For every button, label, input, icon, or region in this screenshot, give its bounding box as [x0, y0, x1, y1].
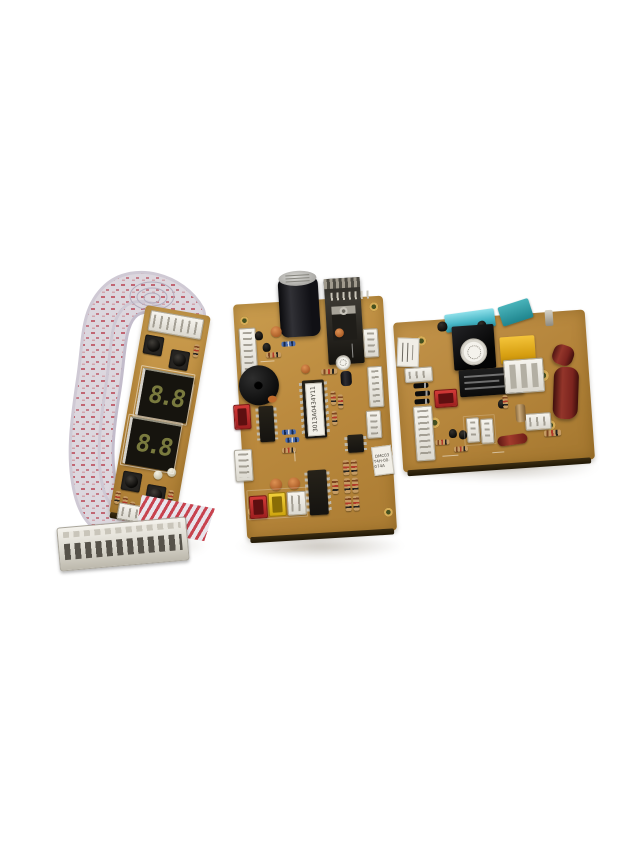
- main-control-pcb: 3013A0434Y11 DMC03: [233, 296, 397, 540]
- capacitor-tan: [515, 404, 526, 423]
- small-capacitor: [437, 321, 448, 332]
- resistor: [332, 411, 338, 425]
- silkscreen-mark: [492, 451, 504, 453]
- resistor: [330, 391, 336, 405]
- resistor: [193, 344, 200, 358]
- fuse-sleeve-large: [552, 367, 579, 420]
- silkscreen-mark: [260, 360, 274, 362]
- round-sticker: [335, 355, 351, 371]
- mounting-hole: [240, 316, 250, 326]
- resistor-blue: [285, 437, 299, 443]
- silkscreen-frame: [246, 487, 308, 521]
- transformer: [451, 324, 496, 371]
- resistor: [338, 394, 344, 408]
- sticker-label: [397, 338, 420, 368]
- connector-slot: [520, 364, 528, 388]
- resistor-blue: [281, 341, 295, 347]
- header-connector: [363, 328, 380, 358]
- resistor: [345, 496, 352, 511]
- piezo-buzzer: [238, 364, 280, 406]
- resistor: [344, 478, 351, 493]
- disc-capacitor: [270, 326, 282, 338]
- eeprom-ic: [347, 434, 364, 453]
- resistor: [435, 439, 449, 445]
- tactile-button: [168, 349, 190, 371]
- resistor: [352, 478, 359, 493]
- ic-label: 3013A0434Y11: [305, 383, 325, 437]
- dip-ic: [258, 406, 275, 443]
- silkscreen-mark: [294, 451, 296, 461]
- mounting-hole: [384, 507, 394, 517]
- resistor: [343, 460, 350, 475]
- diode: [415, 390, 430, 396]
- header-connector: [367, 366, 384, 408]
- connector-slot: [509, 364, 517, 388]
- resistor: [454, 446, 468, 452]
- pin-header: [330, 290, 370, 300]
- resistor: [353, 495, 360, 510]
- resistor: [544, 429, 561, 436]
- power-pcb: [393, 309, 595, 472]
- header-connector: [525, 412, 552, 431]
- resistor: [332, 479, 339, 494]
- resistor: [502, 395, 508, 408]
- transistor: [262, 343, 271, 352]
- heatsink-fins: [324, 277, 361, 289]
- photo-canvas: 8.8 8.8: [0, 0, 640, 853]
- resistor: [266, 352, 281, 358]
- mounting-hole: [369, 302, 379, 312]
- sticker-text: T4H-00-074A: [373, 457, 392, 470]
- microcontroller-ic: 3013A0434Y11: [302, 379, 327, 438]
- resistor: [321, 369, 337, 375]
- header-connector: [366, 410, 383, 439]
- transistor: [449, 429, 458, 439]
- disc-capacitor: [301, 364, 311, 374]
- plug-pin-slots: [64, 534, 183, 560]
- sticker-label: DMC03 T4H-00-074A: [371, 445, 395, 476]
- fuse-sleeve-small: [550, 342, 577, 368]
- connector-slot: [531, 363, 539, 387]
- silkscreen-frame: [120, 414, 183, 475]
- electrolytic-capacitor: [277, 276, 321, 338]
- multi-pin-connector: [413, 405, 436, 461]
- red-connector: [434, 389, 458, 409]
- header-connector: [404, 366, 433, 383]
- silkscreen-mark: [442, 455, 458, 457]
- red-cylinder-capacitor: [497, 433, 528, 447]
- diode: [413, 383, 428, 389]
- capacitor-vent-top: [278, 270, 317, 287]
- silkscreen-frame: [463, 414, 497, 446]
- resistor: [351, 460, 358, 475]
- buzzer-hole: [254, 380, 264, 390]
- tactile-button: [142, 334, 164, 356]
- label-print: [402, 343, 404, 362]
- glue-dot: [268, 395, 277, 403]
- driver-ic: [307, 469, 329, 515]
- diode: [414, 399, 429, 405]
- film-capacitor-teal: [497, 298, 534, 327]
- white-connector-block: [503, 358, 545, 395]
- standoff-pin: [544, 310, 553, 327]
- display-board-assembly: 8.8 8.8: [40, 270, 255, 585]
- transistor: [255, 331, 264, 340]
- resistor-blue: [282, 429, 296, 435]
- label-print: [412, 345, 414, 360]
- tactile-button: [121, 471, 143, 493]
- red-connector: [233, 404, 251, 430]
- edge-connector: [234, 449, 254, 482]
- transformer-sticker: [459, 337, 488, 366]
- small-capacitor: [340, 371, 352, 387]
- label-print: [407, 343, 409, 362]
